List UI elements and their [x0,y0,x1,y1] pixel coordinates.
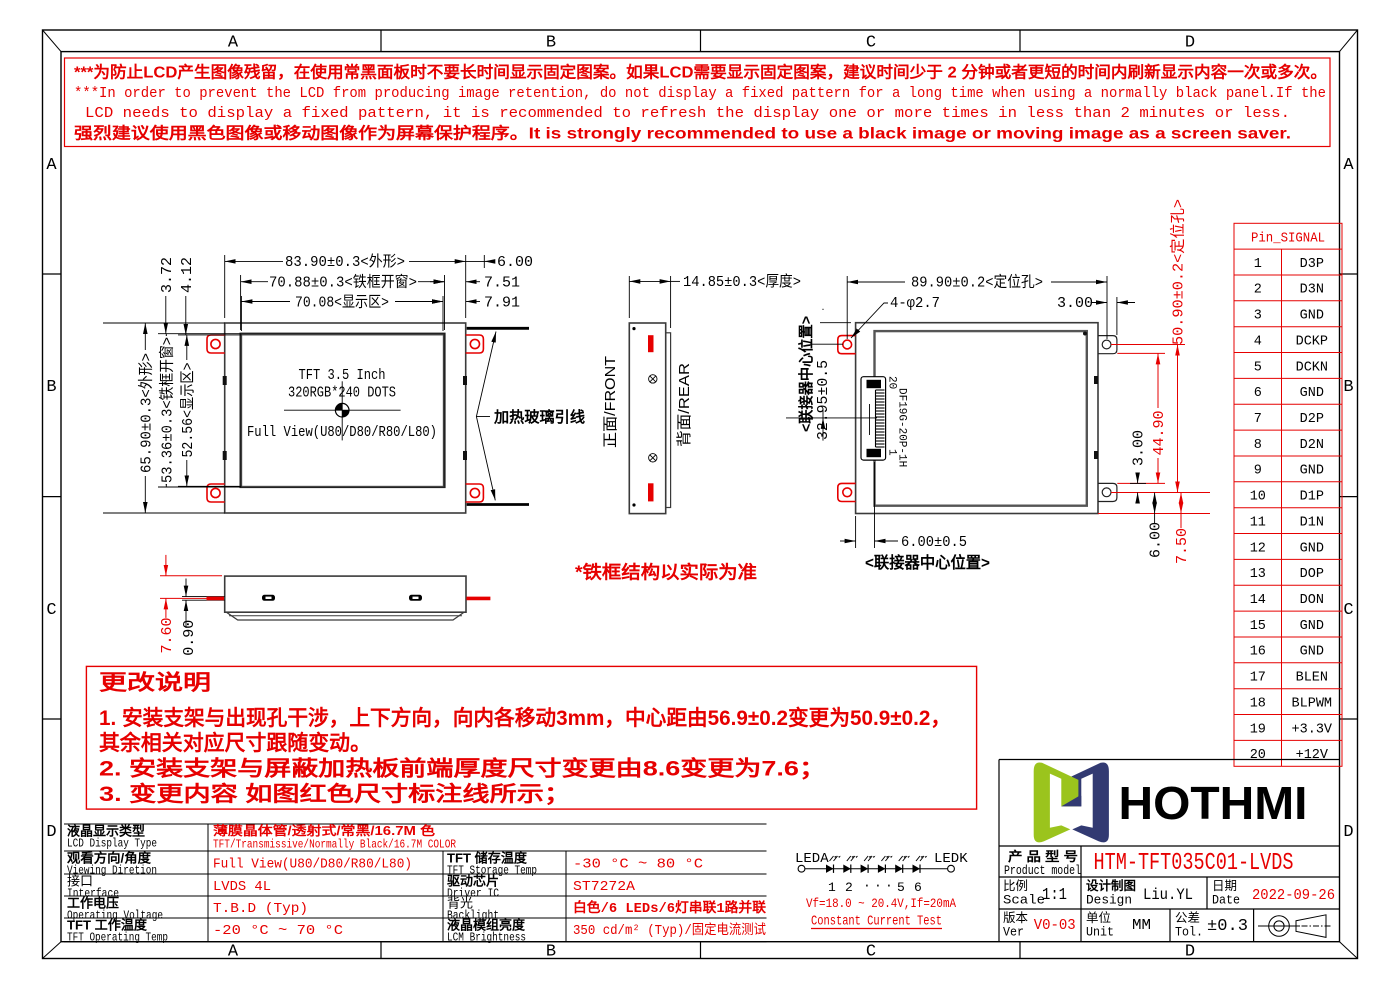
svg-text:V0-03: V0-03 [1034,917,1076,934]
svg-text:ST7272A: ST7272A [573,879,636,895]
svg-text:单位: 单位 [1086,910,1111,925]
svg-text:52.56<显示区>: 52.56<显示区> [180,363,197,458]
svg-text:7.91: 7.91 [484,294,520,311]
svg-text:1:1: 1:1 [1042,886,1067,905]
svg-text:Pin_SIGNAL: Pin_SIGNAL [1251,232,1325,247]
svg-text:1. 安装支架与出现孔干涉，上下方向，向内各移动3mm，中心: 1. 安装支架与出现孔干涉，上下方向，向内各移动3mm，中心距由56.9±0.2… [99,706,951,730]
svg-text:D2N: D2N [1300,438,1324,453]
svg-text:D1N: D1N [1300,515,1324,530]
svg-text:B: B [546,34,556,53]
svg-text:***In order to prevent the LCD: ***In order to prevent the LCD from prod… [74,85,1326,102]
svg-text:D3N: D3N [1300,283,1324,298]
svg-text:3.00: 3.00 [1057,295,1093,312]
svg-text:C: C [1343,601,1353,620]
svg-text:LCM Brightness: LCM Brightness [447,931,526,945]
svg-text:BLPWM: BLPWM [1292,696,1333,711]
svg-text:薄膜晶体管/透射式/常黑/16.7M 色: 薄膜晶体管/透射式/常黑/16.7M 色 [213,823,436,838]
svg-text:其余相关对应尺寸跟随变动。: 其余相关对应尺寸跟随变动。 [99,731,371,755]
svg-text:GND: GND [1300,309,1324,324]
svg-text:GND: GND [1300,464,1324,479]
svg-text:D: D [1343,823,1353,842]
svg-text:强烈建议使用黑色图像或移动图像作为屏幕保护程序。It is: 强烈建议使用黑色图像或移动图像作为屏幕保护程序。It is strongly r… [74,124,1291,143]
svg-text:DCKN: DCKN [1296,360,1328,375]
svg-text:·: · [863,878,871,893]
svg-text:C: C [46,601,56,620]
svg-text:LEDA: LEDA [795,851,829,867]
svg-text:18: 18 [1250,696,1266,711]
svg-text:Design: Design [1086,893,1132,908]
svg-text:89.90±0.2<定位孔>: 89.90±0.2<定位孔> [911,274,1043,292]
svg-text:±0.3: ±0.3 [1207,917,1248,936]
svg-text:产 品 型 号: 产 品 型 号 [1008,849,1078,864]
svg-text:83.90±0.3<外形>: 83.90±0.3<外形> [285,253,405,271]
svg-text:350 cd/m² (Typ)/固定电流测试: 350 cd/m² (Typ)/固定电流测试 [573,922,766,939]
svg-text:GND: GND [1300,619,1324,634]
svg-text:背面/REAR: 背面/REAR [676,363,693,447]
svg-text:D: D [46,823,56,842]
svg-text:DON: DON [1300,593,1324,608]
svg-text:44.90: 44.90 [1151,411,1168,456]
svg-text:HTM-TFT035C01-LVDS: HTM-TFT035C01-LVDS [1094,850,1294,877]
svg-text:3.00: 3.00 [1131,430,1148,466]
svg-text:白色/6 LEDs/6灯串联1路并联: 白色/6 LEDs/6灯串联1路并联 [573,899,767,917]
svg-text:GND: GND [1300,645,1324,660]
svg-text:16: 16 [1250,645,1266,660]
svg-text:设计制图: 设计制图 [1086,878,1136,893]
svg-text:Vf=18.0 ~ 20.4V,If=20mA: Vf=18.0 ~ 20.4V,If=20mA [806,896,956,911]
svg-text:A: A [228,943,239,962]
svg-text:DCKP: DCKP [1296,334,1328,349]
svg-text:D3P: D3P [1300,257,1324,272]
svg-text:C: C [866,34,876,53]
svg-text:2. 安装支架与屏蔽加热板前端厚度尺寸变更由8.6变更为7.: 2. 安装支架与屏蔽加热板前端厚度尺寸变更由8.6变更为7.6； [99,757,826,781]
svg-text:6.00±0.5: 6.00±0.5 [901,534,967,551]
svg-text:Unit: Unit [1086,925,1114,940]
svg-text:B: B [546,943,556,962]
svg-text:6: 6 [914,880,922,895]
svg-text:HOTHMI: HOTHMI [1119,777,1308,829]
svg-text:正面/FRONT: 正面/FRONT [602,356,619,448]
svg-text:LCD needs to display a fixed p: LCD needs to display a fixed pattern, it… [85,105,1290,122]
svg-text:Full View(U80/D80/R80/L80): Full View(U80/D80/R80/L80) [247,425,437,441]
svg-text:20: 20 [1250,748,1266,763]
svg-text:0.90: 0.90 [181,620,198,656]
svg-text:50.90±0.2<定位孔>: 50.90±0.2<定位孔> [1170,199,1188,345]
svg-text:LVDS 4L: LVDS 4L [213,879,271,895]
svg-text:3.72: 3.72 [159,257,176,293]
svg-text:D2P: D2P [1300,412,1324,427]
svg-text:B: B [46,378,56,397]
svg-text:-30 °C ~ 80 °C: -30 °C ~ 80 °C [573,857,703,873]
svg-text:Ver: Ver [1003,925,1024,940]
svg-text:4.12: 4.12 [179,257,196,293]
svg-text:+12V: +12V [1296,748,1329,763]
svg-text:10: 10 [1250,490,1266,505]
svg-text:1: 1 [886,449,898,456]
svg-text:53.36±0.3<铁框开窗>: 53.36±0.3<铁框开窗> [157,337,176,483]
svg-text:17: 17 [1250,671,1266,686]
svg-text:BLEN: BLEN [1296,671,1328,686]
svg-text:D: D [1185,34,1195,53]
svg-text:14: 14 [1250,593,1266,608]
svg-text:65.90±0.3<外形>: 65.90±0.3<外形> [137,353,155,473]
svg-text:1: 1 [1254,257,1262,272]
svg-text:Constant Current Test: Constant Current Test [811,914,942,930]
svg-text:5: 5 [1254,360,1262,375]
svg-text:7.50: 7.50 [1174,528,1191,564]
svg-text:2: 2 [845,880,853,895]
svg-text:Date: Date [1212,893,1240,908]
svg-text:TFT Operating Temp: TFT Operating Temp [67,931,168,945]
svg-text:1: 1 [828,880,836,895]
svg-text:6.00: 6.00 [1148,522,1165,558]
svg-text:7.60: 7.60 [159,618,176,654]
svg-text:***为防止LCD产生图像残留，在使用常黑面板时不要长时间显: ***为防止LCD产生图像残留，在使用常黑面板时不要长时间显示固定图案。如果LC… [74,63,1327,82]
svg-text:6.00: 6.00 [497,254,533,271]
svg-text:MM: MM [1132,917,1151,934]
svg-text:9: 9 [1254,464,1262,479]
svg-text:Full View(U80/D80/R80/L80): Full View(U80/D80/R80/L80) [213,857,412,873]
svg-text:B: B [1343,378,1353,397]
svg-text:A: A [46,156,57,175]
svg-text:+3.3V: +3.3V [1292,722,1333,737]
svg-text:19: 19 [1250,722,1266,737]
svg-text:14.85±0.3<厚度>: 14.85±0.3<厚度> [683,273,801,291]
svg-text:公差: 公差 [1175,911,1200,925]
svg-text:5: 5 [897,880,905,895]
svg-text:TFT/Transmissive/Normally Blac: TFT/Transmissive/Normally Black/16.7M CO… [213,838,456,852]
svg-text:70.88±0.3<铁框开窗>: 70.88±0.3<铁框开窗> [269,273,417,292]
svg-text:-20 °C ~ 70 °C: -20 °C ~ 70 °C [213,923,343,939]
svg-text:C: C [866,943,876,962]
svg-text:<联接器中心位置>: <联接器中心位置> [797,316,815,432]
svg-text:T.B.D (Typ): T.B.D (Typ) [213,901,308,917]
svg-text:比例: 比例 [1003,879,1028,893]
svg-text:GND: GND [1300,541,1324,556]
svg-text:2022-09-26: 2022-09-26 [1252,887,1335,904]
svg-text:70.08<显示区>: 70.08<显示区> [295,294,389,311]
svg-text:Product model: Product model [1004,863,1081,878]
svg-text:更改说明: 更改说明 [99,671,211,695]
svg-text:4: 4 [1254,334,1262,349]
svg-text:<联接器中心位置>: <联接器中心位置> [865,553,990,572]
svg-text:LCD Display Type: LCD Display Type [67,837,157,851]
svg-text:320RGB*240 DOTS: 320RGB*240 DOTS [288,386,396,402]
svg-text:DOP: DOP [1300,567,1324,582]
svg-text:12: 12 [1250,541,1266,556]
svg-text:32.95±0.5: 32.95±0.5 [815,360,832,440]
svg-text:13: 13 [1250,567,1266,582]
svg-text:A: A [1343,156,1354,175]
svg-text:TFT 3.5 Inch: TFT 3.5 Inch [299,368,386,384]
svg-text:加热玻璃引线: 加热玻璃引线 [493,408,585,426]
svg-text:15: 15 [1250,619,1266,634]
svg-text:·: · [874,878,882,893]
svg-text:D: D [1185,943,1195,962]
svg-text:4-φ2.7: 4-φ2.7 [890,295,940,312]
svg-text:·: · [885,878,893,893]
svg-text:6: 6 [1254,386,1262,401]
svg-text:A: A [228,34,239,53]
svg-text:版本: 版本 [1003,911,1028,925]
svg-text:LEDK: LEDK [934,851,968,867]
svg-text:Tol.: Tol. [1175,925,1203,940]
svg-text:7: 7 [1254,412,1262,427]
svg-text:*铁框结构以实际为准: *铁框结构以实际为准 [575,562,757,583]
svg-text:3: 3 [1254,309,1262,324]
svg-text:D1P: D1P [1300,490,1324,505]
svg-text:8: 8 [1254,438,1262,453]
svg-text:Liu.YL: Liu.YL [1143,886,1193,904]
svg-text:3. 变更内容 如图红色尺寸标注线所示；: 3. 变更内容 如图红色尺寸标注线所示； [99,782,571,806]
svg-text:7.51: 7.51 [484,275,520,292]
svg-text:GND: GND [1300,386,1324,401]
svg-text:日期: 日期 [1212,879,1237,893]
svg-text:Scale: Scale [1003,893,1045,908]
svg-text:11: 11 [1250,515,1266,530]
svg-text:2: 2 [1254,283,1262,298]
